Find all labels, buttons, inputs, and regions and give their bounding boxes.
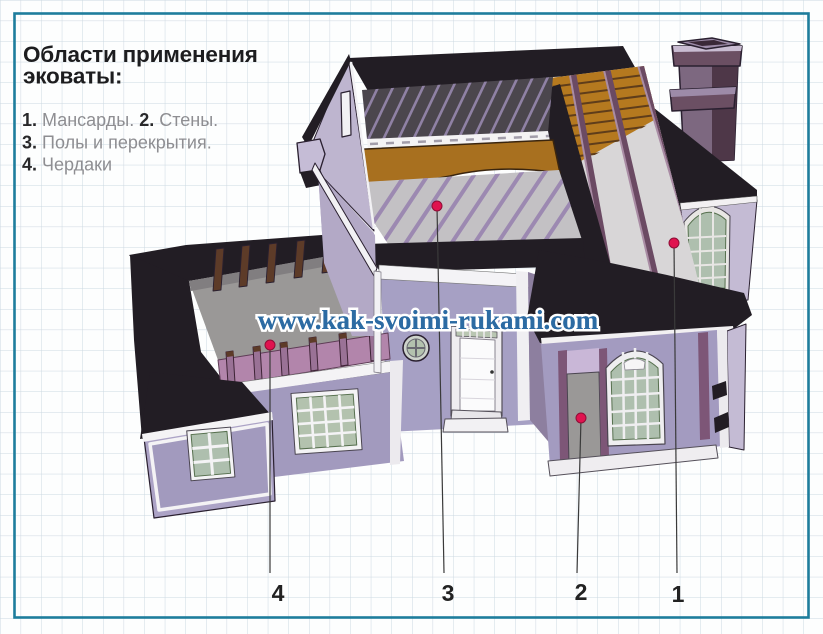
svg-text:эковаты:: эковаты:	[23, 64, 122, 89]
svg-text:4: 4	[272, 580, 285, 606]
svg-text:3: 3	[442, 580, 455, 606]
svg-text:1: 1	[672, 581, 685, 607]
svg-text:www.kak-svoimi-rukami.com: www.kak-svoimi-rukami.com	[258, 305, 599, 335]
svg-text:2: 2	[575, 579, 588, 605]
svg-text:4. Чердаки: 4. Чердаки	[22, 155, 112, 175]
svg-text:3. Полы и перекрытия.: 3. Полы и перекрытия.	[22, 132, 212, 152]
svg-text:1. Мансарды. 2. Стены.: 1. Мансарды. 2. Стены.	[22, 110, 218, 130]
